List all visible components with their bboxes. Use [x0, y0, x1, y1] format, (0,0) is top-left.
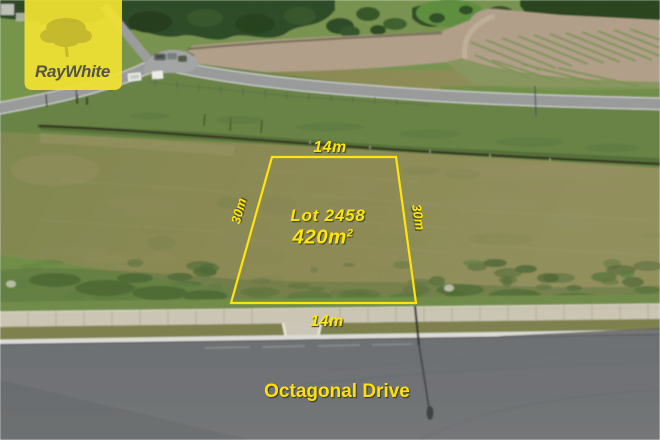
svg-text:Lot 2458: Lot 2458	[290, 206, 365, 225]
svg-text:RayWhite: RayWhite	[35, 62, 110, 81]
svg-text:Octagonal Drive: Octagonal Drive	[264, 381, 410, 402]
svg-text:420m2: 420m2	[291, 226, 353, 249]
svg-text:14m: 14m	[313, 139, 347, 156]
svg-text:14m: 14m	[310, 313, 344, 330]
